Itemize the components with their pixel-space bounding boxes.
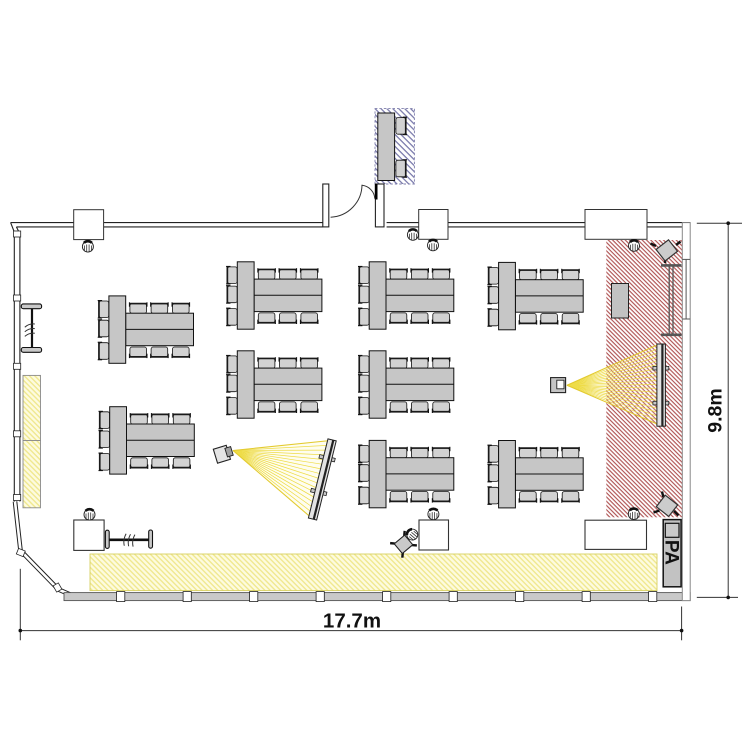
svg-text:9.8m: 9.8m — [705, 388, 727, 432]
svg-text:17.7m: 17.7m — [323, 610, 381, 633]
svg-text:PA: PA — [661, 540, 682, 565]
